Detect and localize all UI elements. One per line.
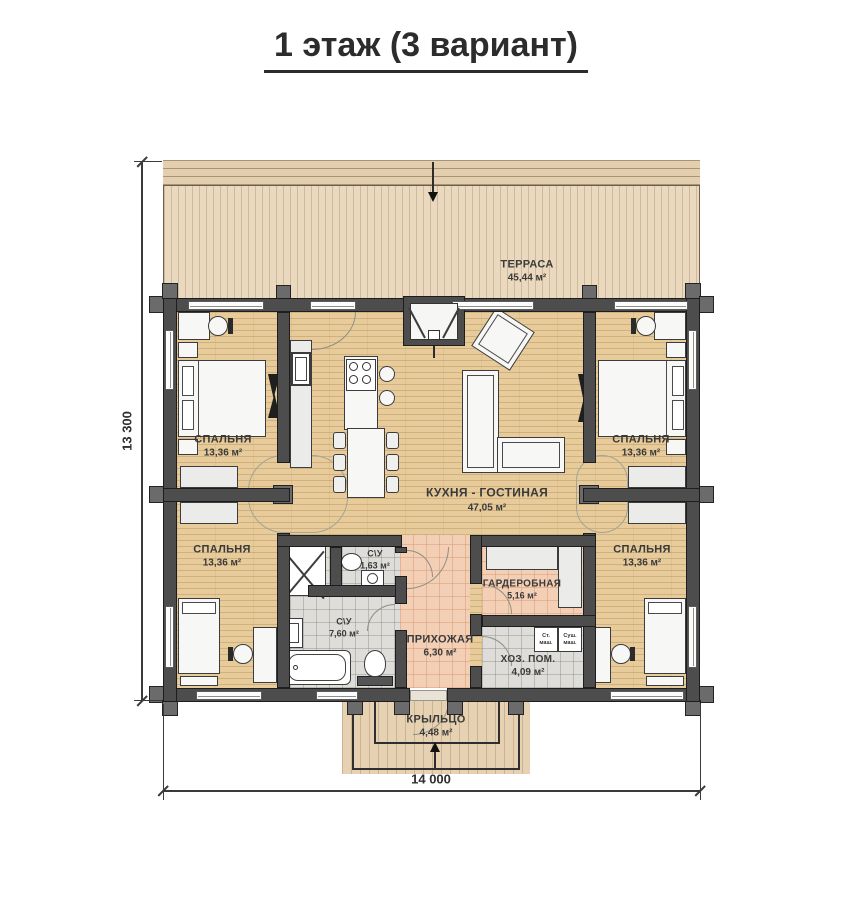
closet-icon xyxy=(180,502,238,524)
stove-burner xyxy=(349,362,358,371)
log-end xyxy=(149,486,164,503)
bar-stool-icon xyxy=(379,366,395,382)
dimension-ext xyxy=(134,700,162,701)
window xyxy=(165,606,174,668)
wall-living-bottom-left xyxy=(277,535,402,547)
kitchen-living-label: КУХНЯ - ГОСТИНАЯ 47,05 м² xyxy=(426,486,548,515)
stove-burner xyxy=(349,375,358,384)
fireplace-hearth-line xyxy=(433,346,435,358)
office-chair-back xyxy=(228,318,233,334)
entrance-door-threshold xyxy=(410,690,447,701)
closet-icon xyxy=(628,466,686,488)
window xyxy=(196,691,262,700)
wall-wc-left xyxy=(330,547,342,587)
dimension-ext xyxy=(700,704,701,800)
toilet-icon xyxy=(341,553,362,571)
bedroom-bottom-right-label: СПАЛЬНЯ 13,36 м² xyxy=(613,542,671,569)
chair-icon xyxy=(386,432,399,449)
wall-wardrobe-utility xyxy=(482,615,596,627)
log-end xyxy=(699,486,714,503)
terrace-entrance-arrow xyxy=(432,162,434,194)
office-chair-back xyxy=(228,647,233,661)
window xyxy=(688,606,697,668)
chair-icon xyxy=(333,432,346,449)
terrace-entrance-arrowhead-icon xyxy=(428,192,438,202)
bar-stool-icon xyxy=(379,390,395,406)
chair-icon xyxy=(333,454,346,471)
bed-headline xyxy=(198,361,199,436)
dryer-icon: Суш. маш. xyxy=(558,627,582,652)
desk-icon xyxy=(253,627,277,683)
window xyxy=(452,301,534,310)
pillow xyxy=(672,366,684,396)
stove-burner xyxy=(362,362,371,371)
chair-icon xyxy=(386,454,399,471)
sofa-icon xyxy=(462,370,499,473)
dimension-label-vertical: 13 300 xyxy=(120,411,135,451)
office-chair-back xyxy=(630,647,635,661)
toilet-base xyxy=(357,676,393,686)
dimension-ext xyxy=(163,704,164,800)
window xyxy=(610,691,684,700)
closet-icon xyxy=(180,466,238,488)
chair-icon xyxy=(333,476,346,493)
bedroom-bottom-left-label: СПАЛЬНЯ 13,36 м² xyxy=(193,542,251,569)
wall-interior-left-lower xyxy=(277,533,290,688)
floor-plan-page: 1 этаж (3 вариант) ТЕРРАСА 45,44 м² КРЫЛ… xyxy=(0,0,852,918)
log-end xyxy=(699,686,714,703)
wall-shower-bottom xyxy=(308,585,407,597)
wall-living-bottom-right xyxy=(470,535,596,547)
chair-icon xyxy=(386,476,399,493)
window xyxy=(688,330,697,390)
window xyxy=(188,301,264,310)
nightstand-icon xyxy=(666,342,686,358)
wall-hall-bath-3 xyxy=(395,630,407,688)
log-end xyxy=(276,285,291,299)
window xyxy=(316,691,358,700)
closet-icon xyxy=(486,546,558,570)
wall-interior-right-upper xyxy=(583,312,596,463)
bathroom-label: С\У 7,60 м² xyxy=(329,616,359,639)
pillow xyxy=(672,400,684,430)
window xyxy=(165,330,174,390)
log-end xyxy=(162,283,178,299)
porch-entrance-arrowhead-icon xyxy=(430,742,440,752)
pillow xyxy=(648,602,682,614)
office-chair-icon xyxy=(233,644,253,664)
dimension-label-horizontal: 14 000 xyxy=(411,772,451,787)
dimension-line-vertical xyxy=(141,161,143,701)
log-end xyxy=(582,285,597,299)
pillow xyxy=(182,366,194,396)
stove-burner xyxy=(362,375,371,384)
page-title: 1 этаж (3 вариант) xyxy=(264,26,588,73)
porch-entrance-arrow xyxy=(434,750,436,768)
bedroom-top-left-label: СПАЛЬНЯ 13,36 м² xyxy=(194,432,252,459)
dining-table-icon xyxy=(347,428,385,498)
sofa-icon xyxy=(497,437,565,473)
bathtub-drain xyxy=(293,665,298,670)
desk-icon xyxy=(654,312,686,340)
wall-wardrobe-left-1 xyxy=(470,535,482,584)
pillow xyxy=(182,602,216,614)
dimension-ext xyxy=(134,161,162,162)
wardrobe-label: ГАРДЕРОБНАЯ 5,16 м² xyxy=(483,578,562,603)
nightstand-icon xyxy=(178,342,198,358)
porch-label: КРЫЛЬЦО 4,48 м² xyxy=(406,712,465,739)
closet-icon xyxy=(628,502,686,524)
pillow xyxy=(182,400,194,430)
log-end xyxy=(685,700,701,716)
wc-sink-basin xyxy=(367,573,378,584)
bed-chest xyxy=(180,676,218,686)
wall-wardrobe-left-3 xyxy=(470,666,482,688)
hallway-label: ПРИХОЖАЯ 6,30 м² xyxy=(407,632,474,659)
office-chair-back xyxy=(631,318,636,334)
wall-interior-left-upper xyxy=(277,312,290,463)
log-end xyxy=(699,296,714,313)
desk-icon xyxy=(178,312,210,340)
wc-small-label: С\У 1,63 м² xyxy=(360,548,390,571)
wall-hall-bath-1 xyxy=(395,547,407,553)
bed-chest xyxy=(646,676,684,686)
log-end xyxy=(162,700,178,716)
log-end xyxy=(508,700,524,715)
wall-interior-right-lower xyxy=(583,533,596,688)
bedroom-top-right-label: СПАЛЬНЯ 13,36 м² xyxy=(612,432,670,459)
dimension-line-horizontal xyxy=(163,790,700,792)
fireplace-flue xyxy=(428,330,440,340)
terrace-door-glass xyxy=(310,301,356,310)
office-chair-icon xyxy=(611,644,631,664)
toilet-icon xyxy=(364,650,386,677)
kitchen-sink-basin xyxy=(295,357,307,381)
bed-headline xyxy=(666,361,667,436)
wall-closet-right xyxy=(583,488,700,502)
office-chair-icon xyxy=(636,316,656,336)
terrace-label: ТЕРРАСА 45,44 м² xyxy=(500,257,553,284)
utility-label: ХОЗ. ПОМ. 4,09 м² xyxy=(501,653,556,679)
window xyxy=(614,301,688,310)
log-end xyxy=(347,700,363,715)
wall-closet-left xyxy=(163,488,290,502)
washer-icon: Ст. маш. xyxy=(534,627,558,652)
closet-icon xyxy=(558,546,582,608)
office-chair-icon xyxy=(208,316,228,336)
wall-hall-bath-2 xyxy=(395,576,407,604)
